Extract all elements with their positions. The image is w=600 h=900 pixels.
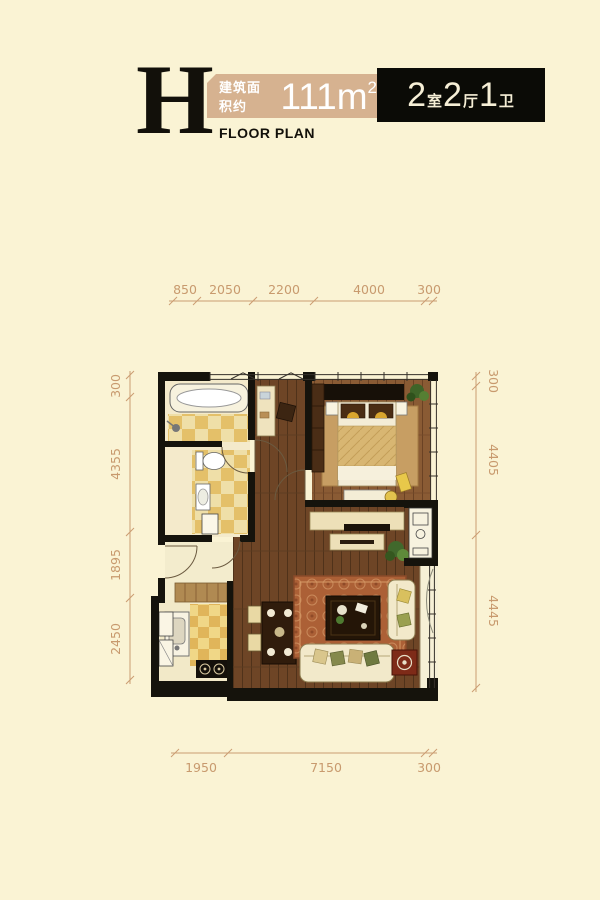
toilet xyxy=(196,452,203,470)
living-room-furniture xyxy=(294,576,417,682)
bed-bench xyxy=(344,490,390,501)
dim-bottom-2: 300 xyxy=(417,760,441,775)
dim-top-3: 4000 xyxy=(353,282,385,297)
dim-bottom-0: 1950 xyxy=(185,760,217,775)
blanket xyxy=(338,426,396,466)
dim-bottom-1: 7150 xyxy=(310,760,342,775)
dim-left-3: 2450 xyxy=(108,623,123,655)
stove xyxy=(196,660,228,678)
wardrobe xyxy=(312,384,324,472)
entry-cabinet xyxy=(159,612,173,636)
pillow xyxy=(364,650,380,666)
dim-top-4: 300 xyxy=(417,282,441,297)
appliance-niche xyxy=(409,508,432,558)
sofa xyxy=(300,644,394,682)
kitchen-counter xyxy=(175,583,227,602)
dim-right-0: 300 xyxy=(486,369,501,393)
tv xyxy=(344,524,390,531)
balcony-strip xyxy=(420,566,438,688)
nightstand xyxy=(326,402,339,415)
floor-plan-page: H 建筑面积约 111m2 2 室 2 厅 1 卫 FLOOR PLAN xyxy=(0,0,600,900)
pillow xyxy=(397,613,411,627)
dim-top-0: 850 xyxy=(173,282,197,297)
window-chevron-icon xyxy=(279,373,303,379)
dim-top-2: 2200 xyxy=(268,282,300,297)
dining-chair xyxy=(248,634,261,651)
bathroom-cabinet xyxy=(202,514,218,534)
pillow xyxy=(313,649,328,664)
floor-plan-drawing: 850 2050 2200 4000 300 1950 7150 300 300… xyxy=(0,0,600,900)
dim-left-1: 4355 xyxy=(108,448,123,480)
dim-right-2: 4445 xyxy=(486,595,501,627)
dim-left-2: 1895 xyxy=(108,549,123,581)
dining-chair xyxy=(248,606,261,623)
dim-right-1: 4405 xyxy=(486,444,501,476)
pillow xyxy=(330,651,345,666)
dim-left-0: 300 xyxy=(108,374,123,398)
coffee-table xyxy=(326,596,380,640)
headboard xyxy=(324,384,404,400)
dim-top-1: 2050 xyxy=(209,282,241,297)
desk-chair xyxy=(276,402,295,421)
pillow xyxy=(348,649,363,664)
